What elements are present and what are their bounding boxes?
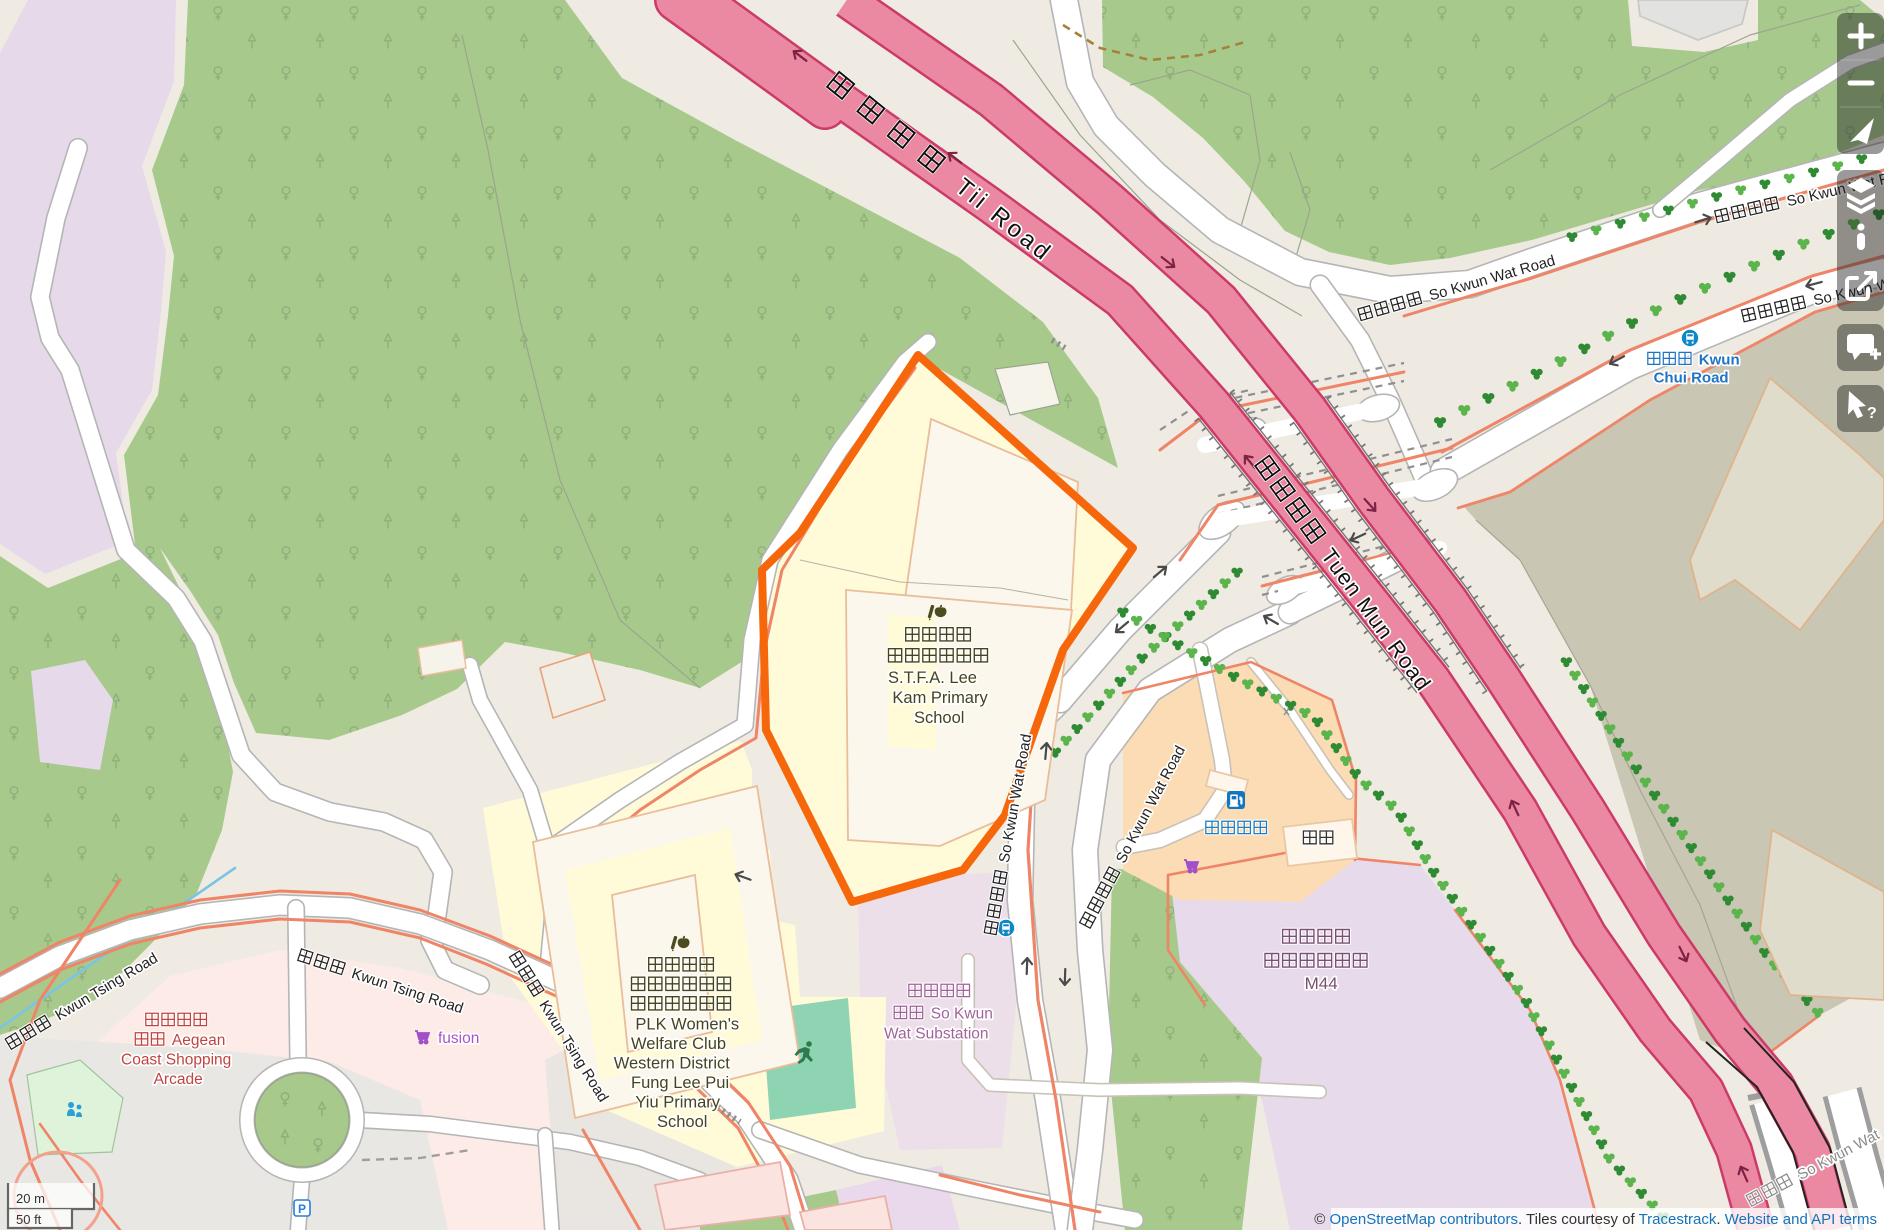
svg-text:Wat Substation: Wat Substation (884, 1026, 989, 1043)
svg-text:Fung Lee Pui: Fung Lee Pui (631, 1074, 729, 1092)
svg-text:Kwun: Kwun (1699, 351, 1740, 368)
svg-text:PLK Women's: PLK Women's (635, 1015, 739, 1033)
svg-text:Coast Shopping: Coast Shopping (121, 1052, 231, 1069)
svg-text:S.T.F.A. Lee: S.T.F.A. Lee (888, 669, 977, 687)
svg-text:Chui Road: Chui Road (1654, 369, 1729, 386)
svg-text:Arcade: Arcade (154, 1071, 203, 1088)
svg-text:So Kwun: So Kwun (931, 1006, 993, 1023)
svg-text:M44: M44 (1305, 974, 1338, 993)
svg-text:?: ? (1867, 405, 1877, 422)
svg-text:Aegean: Aegean (172, 1032, 225, 1049)
svg-text:Yiu Primary: Yiu Primary (635, 1093, 720, 1111)
svg-text:Welfare Club: Welfare Club (631, 1035, 726, 1053)
svg-text:fusion: fusion (438, 1030, 479, 1047)
svg-text:Kam Primary: Kam Primary (892, 689, 988, 707)
svg-text:P: P (298, 1202, 306, 1216)
svg-text:School: School (914, 709, 964, 727)
svg-text:Western District: Western District (614, 1054, 731, 1072)
svg-text:© OpenStreetMap contributors.: © OpenStreetMap contributors. Tiles cour… (1314, 1211, 1877, 1228)
svg-text:50 ft: 50 ft (16, 1212, 42, 1227)
svg-text:20 m: 20 m (16, 1191, 45, 1206)
svg-text:School: School (657, 1113, 707, 1131)
